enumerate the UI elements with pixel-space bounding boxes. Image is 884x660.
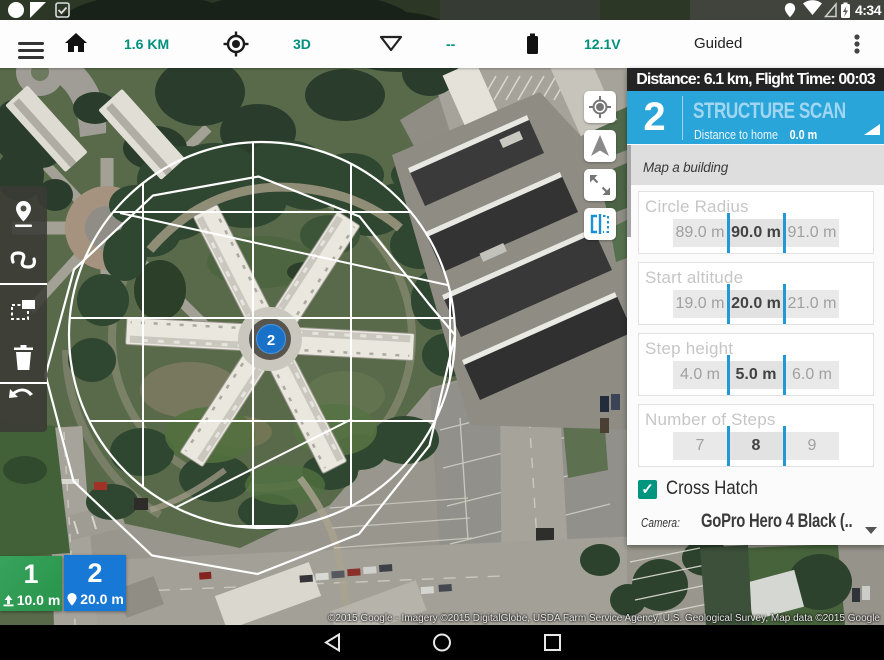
svg-text:2: 2 [267, 332, 275, 349]
